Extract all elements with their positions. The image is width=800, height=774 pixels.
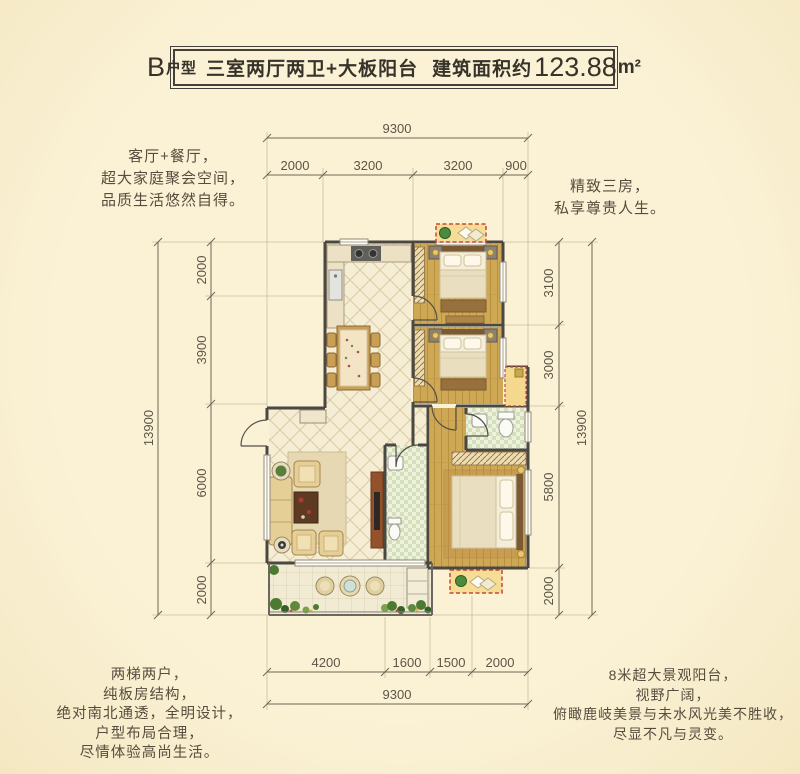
- tv: [374, 492, 380, 530]
- dim-left-seg: 2000: [194, 576, 209, 605]
- dim-top-seg: 3200: [444, 158, 473, 173]
- plant: [440, 228, 451, 239]
- dim-top-seg: 2000: [281, 158, 310, 173]
- coffee-table: [294, 492, 318, 523]
- master-balcony: [450, 570, 502, 593]
- plant: [456, 576, 467, 587]
- dim-top-overall: 9300: [383, 121, 412, 136]
- dim-left-seg: 3900: [194, 336, 209, 365]
- sofa: [269, 477, 292, 545]
- dim-right-overall: 13900: [574, 410, 589, 446]
- dim-right-seg: 2000: [541, 577, 556, 606]
- toilet: [499, 419, 513, 437]
- plant: [276, 466, 287, 477]
- bed-headboard: [442, 246, 484, 252]
- entry-door: [241, 420, 267, 446]
- bed-headboard: [442, 329, 484, 335]
- toilet: [389, 524, 400, 540]
- wardrobe: [452, 452, 526, 465]
- dim-top-seg: 3200: [354, 158, 383, 173]
- dim-top-seg: 900: [505, 158, 527, 173]
- floor-plan: 9300 2000 3200 3200 900 13900 2000 3900 …: [0, 0, 800, 774]
- dim-left-overall: 13900: [141, 410, 156, 446]
- dim-left-seg: 2000: [194, 256, 209, 285]
- dim-bottom-seg: 1600: [393, 655, 422, 670]
- dim-right-seg: 5800: [541, 473, 556, 502]
- entry-cabinet: [300, 410, 326, 423]
- dim-bottom-seg: 4200: [312, 655, 341, 670]
- bed-headboard: [516, 474, 523, 550]
- dim-right-seg: 3000: [541, 351, 556, 380]
- wardrobe: [415, 247, 425, 303]
- dim-left-seg: 6000: [194, 469, 209, 498]
- dim-right-seg: 3100: [541, 269, 556, 298]
- dining-table: [327, 326, 380, 390]
- dim-bottom-overall: 9300: [383, 687, 412, 702]
- floorplan-page: B 户型 三室两厅两卫+大板阳台 建筑面积约 123.88 m² 客厅+餐厅， …: [0, 0, 800, 774]
- dim-bottom-seg: 1500: [437, 655, 466, 670]
- flue: [505, 367, 526, 406]
- top-balcony: [436, 224, 486, 242]
- dim-bottom-seg: 2000: [486, 655, 515, 670]
